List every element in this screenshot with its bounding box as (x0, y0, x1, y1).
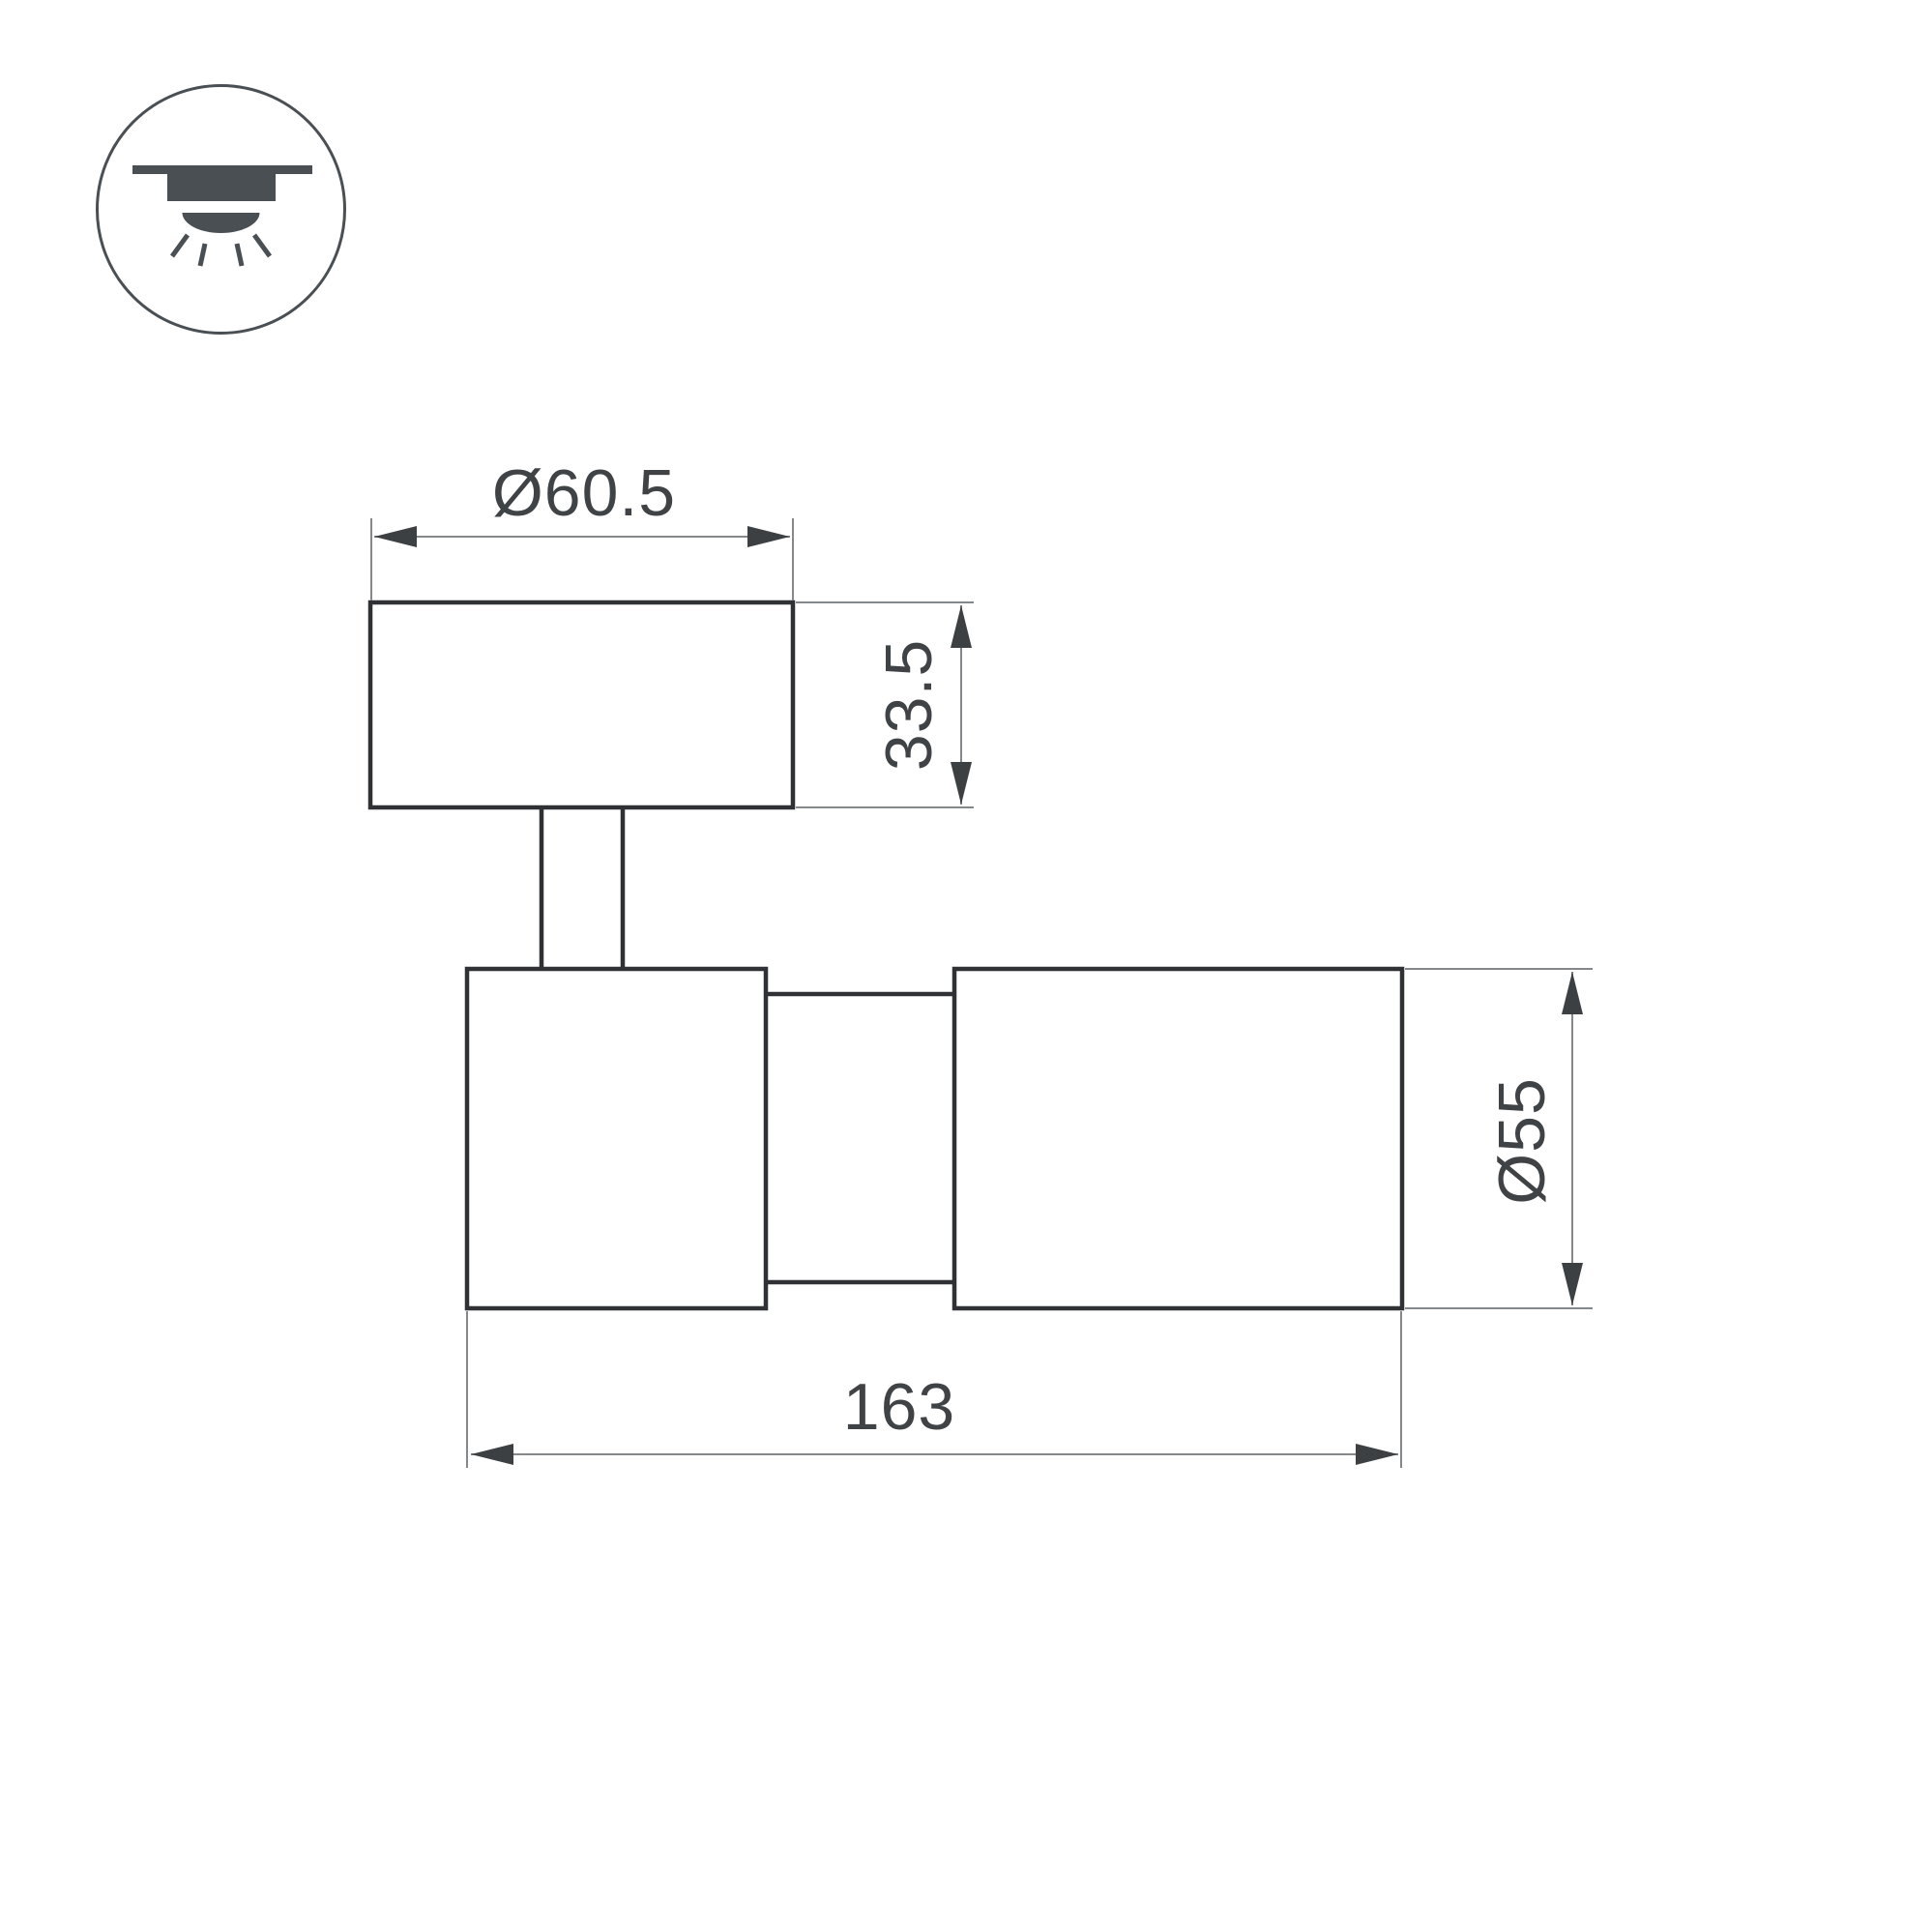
dimension-lines (371, 518, 793, 600)
dimension-body-length: 163 (467, 1311, 1401, 1468)
technical-drawing-svg: Ø60.5 33.5 (0, 0, 1932, 1932)
arrowhead-top (1562, 972, 1583, 1014)
dim-label-canopy-height: 33.5 (872, 639, 946, 771)
icon-circle (98, 86, 345, 334)
body-rear-outline (467, 969, 766, 1308)
dim-label-body-length: 163 (843, 1370, 955, 1444)
mount-type-icon (98, 86, 345, 334)
drawing-canvas: Ø60.5 33.5 (0, 0, 1932, 1932)
arrowhead-bottom (1562, 1263, 1583, 1305)
fixture-housing-shape (167, 173, 276, 201)
ceiling-line-shape (132, 165, 312, 174)
arrowhead-left (374, 526, 417, 547)
body-front-outline (954, 969, 1402, 1308)
dimension-canopy-height: 33.5 (796, 602, 974, 807)
dimension-body-diameter: Ø55 (1405, 969, 1593, 1308)
arrowhead-bottom (951, 762, 972, 805)
canopy-outline (370, 602, 793, 807)
arrowhead-left (471, 1444, 513, 1465)
arrowhead-right (747, 526, 790, 547)
dim-label-canopy-diameter: Ø60.5 (492, 456, 676, 530)
arrowhead-top (951, 605, 972, 648)
dimension-canopy-diameter: Ø60.5 (371, 456, 793, 600)
dim-label-body-diameter: Ø55 (1485, 1077, 1559, 1205)
arrowhead-right (1356, 1444, 1398, 1465)
